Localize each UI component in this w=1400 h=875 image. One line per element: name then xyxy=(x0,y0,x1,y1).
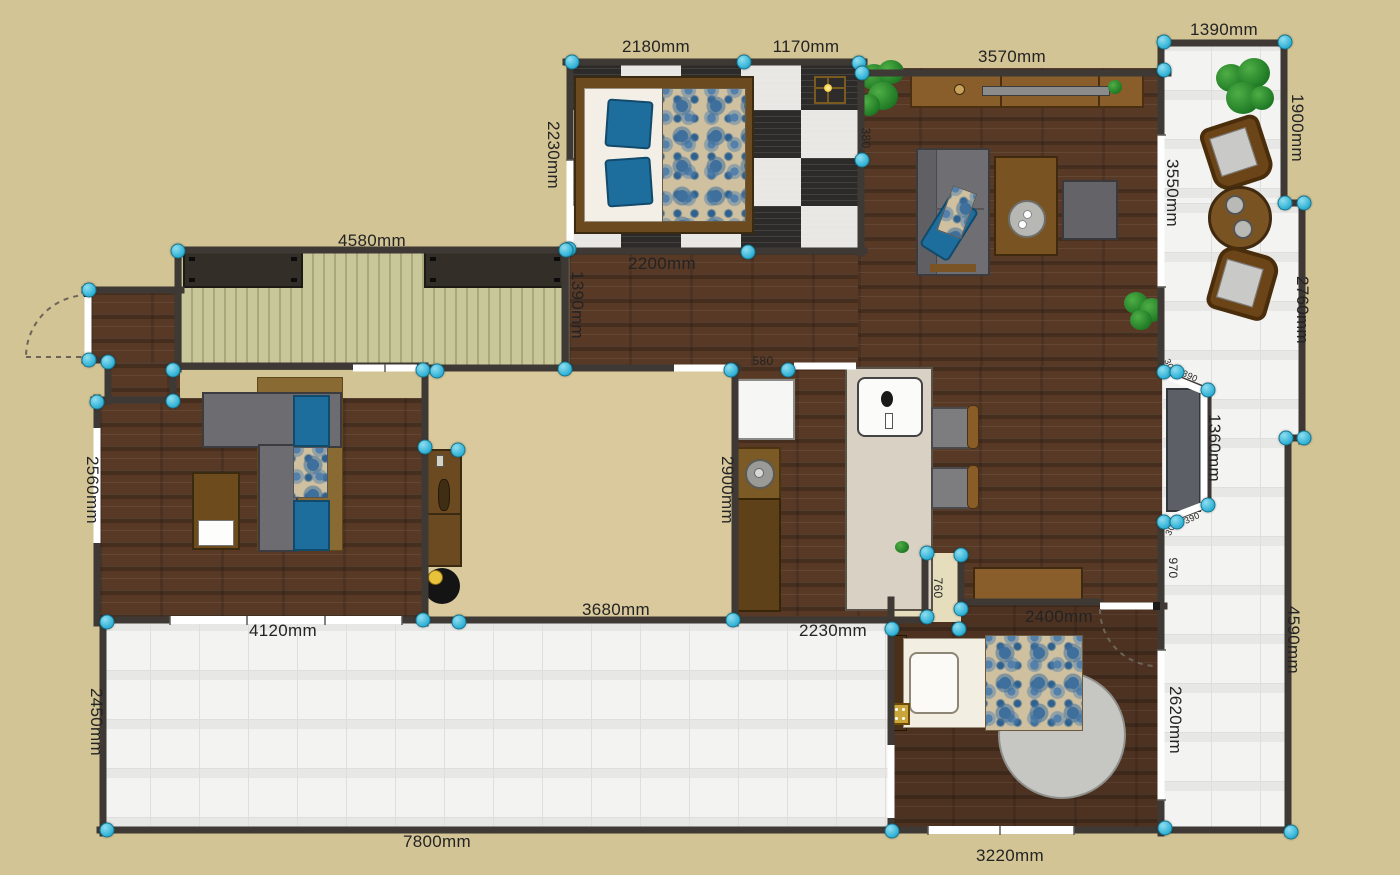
dimension-label: 3570mm xyxy=(978,47,1046,67)
vertex-handle[interactable] xyxy=(1279,431,1294,446)
vertex-handle[interactable] xyxy=(855,153,870,168)
vertex-handle[interactable] xyxy=(416,613,431,628)
vertex-handle[interactable] xyxy=(82,353,97,368)
dimension-label: 3550mm xyxy=(1162,159,1182,227)
dimension-label: 2230mm xyxy=(543,121,563,189)
dimension-label: 2400mm xyxy=(1025,607,1093,627)
dimension-label: 2560mm xyxy=(82,456,102,524)
door-hinge xyxy=(1153,602,1160,610)
vertex-handle[interactable] xyxy=(1157,63,1172,78)
dimension-label: 3220mm xyxy=(976,846,1044,866)
window-mullions xyxy=(170,135,1166,835)
vertex-handle[interactable] xyxy=(1201,498,1216,513)
dimension-label: 2620mm xyxy=(1165,686,1185,754)
vertex-handle[interactable] xyxy=(741,245,756,260)
vertex-handle[interactable] xyxy=(416,363,431,378)
windows[interactable] xyxy=(97,135,1204,830)
vertex-handle[interactable] xyxy=(100,615,115,630)
vertex-handle[interactable] xyxy=(166,363,181,378)
dimension-label: 2200mm xyxy=(628,254,696,274)
vertex-handle[interactable] xyxy=(1170,365,1185,380)
vertex-handle[interactable] xyxy=(737,55,752,70)
dimension-label: 2230mm xyxy=(799,621,867,641)
walls-layer xyxy=(0,0,1400,875)
floor-plan-canvas: 2180mm1170mm3570mm1390mm2230mm1900mm3550… xyxy=(0,0,1400,875)
wall-path[interactable] xyxy=(85,40,1306,833)
dimension-label: 2760mm xyxy=(1292,276,1312,344)
vertex-handle[interactable] xyxy=(885,824,900,839)
dimension-label: 4590mm xyxy=(1283,606,1303,674)
vertex-handle[interactable] xyxy=(920,610,935,625)
vertex-handle[interactable] xyxy=(100,823,115,838)
dimension-label: 4120mm xyxy=(249,621,317,641)
dimension-label: 1390mm xyxy=(567,271,587,339)
vertex-handle[interactable] xyxy=(451,443,466,458)
dimension-label: 2900mm xyxy=(717,456,737,524)
dimension-label: 1390mm xyxy=(1190,20,1258,40)
door-swing-arc xyxy=(26,295,88,357)
vertex-handle[interactable] xyxy=(1297,196,1312,211)
vertex-handle[interactable] xyxy=(90,395,105,410)
vertex-handle[interactable] xyxy=(171,244,186,259)
dimension-label: 1170mm xyxy=(773,37,840,57)
vertex-handle[interactable] xyxy=(1158,821,1173,836)
vertex-handle[interactable] xyxy=(726,613,741,628)
vertex-handle[interactable] xyxy=(1201,383,1216,398)
dimension-label: 2450mm xyxy=(86,688,106,756)
vertex-handle[interactable] xyxy=(418,440,433,455)
dimension-label: 1900mm xyxy=(1287,94,1307,162)
vertex-handle[interactable] xyxy=(781,363,796,378)
vertex-handle[interactable] xyxy=(452,615,467,630)
door-swing-arc xyxy=(1100,609,1157,666)
dimension-label: 380 xyxy=(859,128,873,149)
vertex-handle[interactable] xyxy=(430,364,445,379)
dimension-label: 1360mm xyxy=(1204,414,1224,482)
vertex-handle[interactable] xyxy=(1278,196,1293,211)
vertex-handle[interactable] xyxy=(724,363,739,378)
dimension-label: 7800mm xyxy=(403,832,471,852)
vertex-handle[interactable] xyxy=(855,66,870,81)
vertex-handle[interactable] xyxy=(1284,825,1299,840)
dimension-label: 2180mm xyxy=(622,37,690,57)
vertex-handle[interactable] xyxy=(558,362,573,377)
vertex-handle[interactable] xyxy=(82,283,97,298)
vertex-handle[interactable] xyxy=(952,622,967,637)
vertex-handle[interactable] xyxy=(920,546,935,561)
entry-door[interactable] xyxy=(26,291,92,357)
vertex-handle[interactable] xyxy=(1278,35,1293,50)
vertex-handle[interactable] xyxy=(1157,35,1172,50)
dimension-label: 3680mm xyxy=(582,600,650,620)
vertex-handle[interactable] xyxy=(1297,431,1312,446)
vertex-handle[interactable] xyxy=(101,355,116,370)
vertex-handle[interactable] xyxy=(565,55,580,70)
bedroom2-door[interactable] xyxy=(1100,602,1160,666)
vertex-handle[interactable] xyxy=(1170,515,1185,530)
dimension-label: 760 xyxy=(931,578,945,599)
dimension-label: 4580mm xyxy=(338,231,406,251)
dimension-label: 580 xyxy=(753,354,774,368)
vertex-handle[interactable] xyxy=(954,602,969,617)
vertex-handle[interactable] xyxy=(166,394,181,409)
vertex-handle[interactable] xyxy=(885,622,900,637)
dimension-label: 970 xyxy=(1166,558,1180,579)
vertex-handle[interactable] xyxy=(559,243,574,258)
vertex-handle[interactable] xyxy=(954,548,969,563)
